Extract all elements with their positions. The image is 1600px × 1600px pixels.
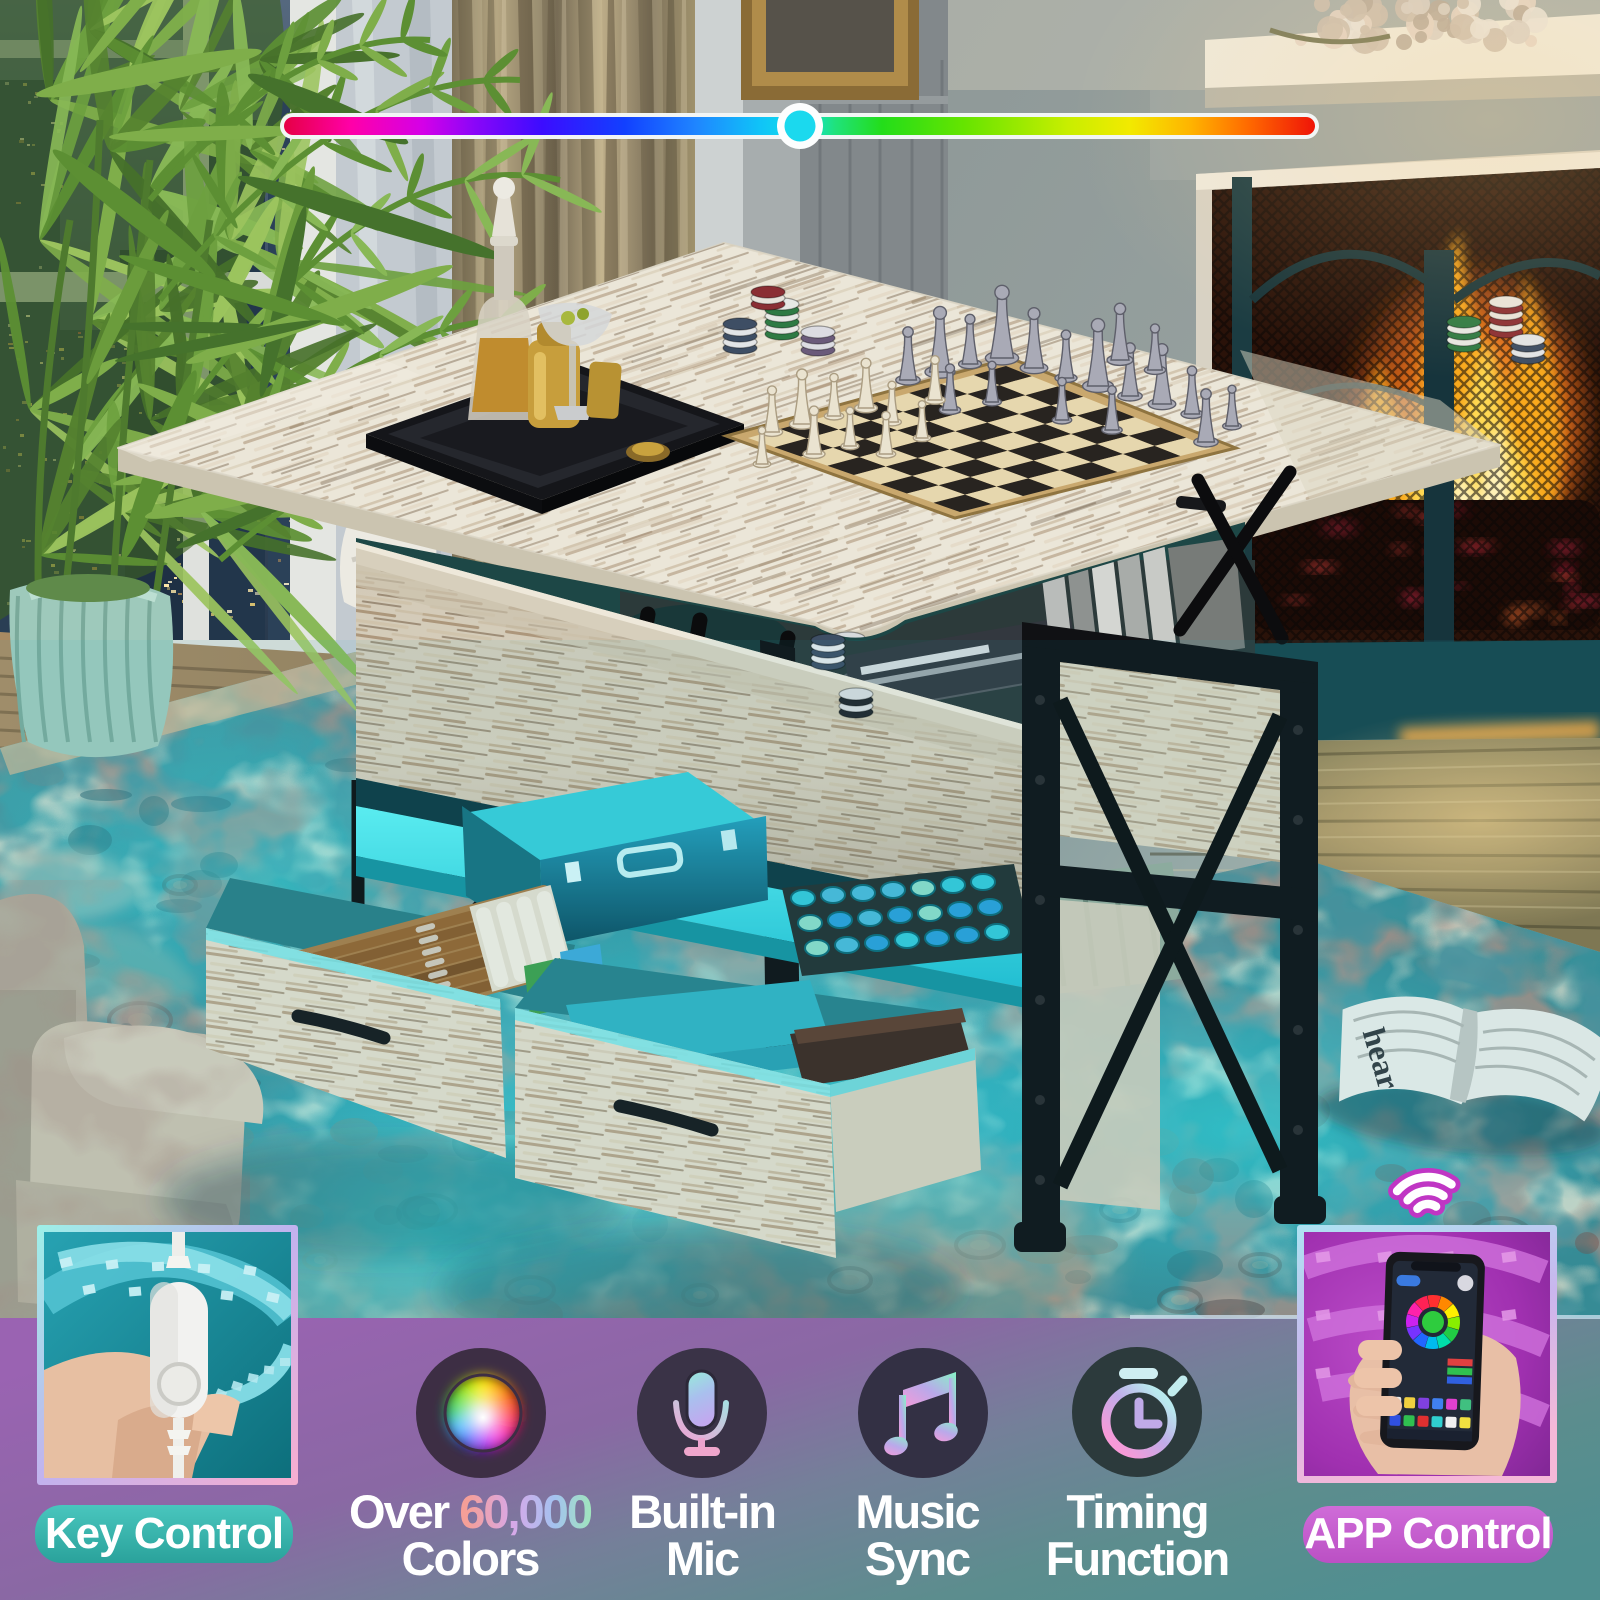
- svg-text:Built-in: Built-in: [629, 1485, 775, 1538]
- svg-text:Colors: Colors: [402, 1532, 540, 1585]
- svg-text:Sync: Sync: [865, 1532, 970, 1585]
- svg-text:Over 60,000: Over 60,000: [349, 1485, 592, 1538]
- svg-text:Key Control: Key Control: [45, 1509, 283, 1558]
- svg-text:Timing: Timing: [1066, 1485, 1207, 1538]
- svg-text:Mic: Mic: [666, 1532, 739, 1585]
- svg-text:Music: Music: [855, 1485, 979, 1538]
- svg-text:APP Control: APP Control: [1304, 1509, 1551, 1558]
- svg-text:Function: Function: [1046, 1532, 1228, 1585]
